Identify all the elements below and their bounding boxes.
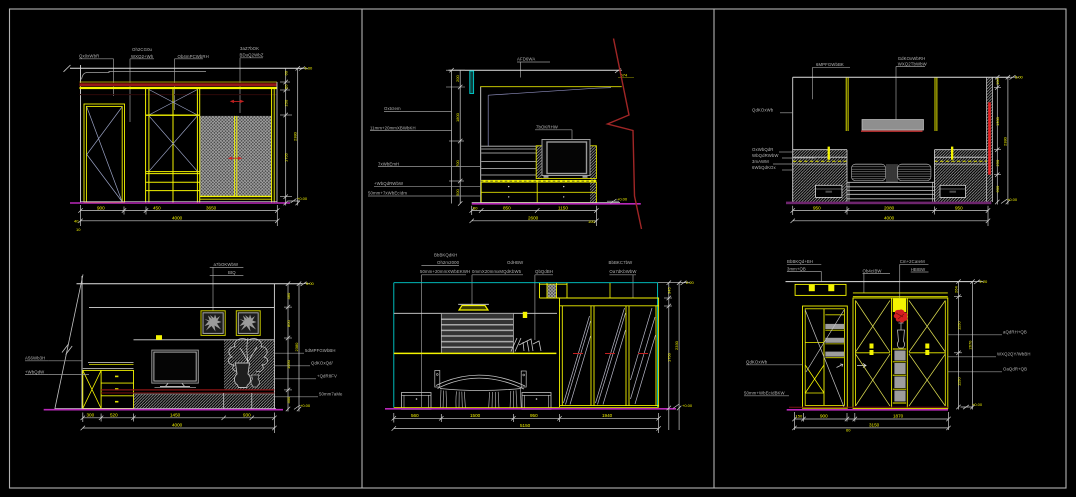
svg-text:3mAWM: 3mAWM (752, 159, 769, 164)
svg-text:5.00: 5.00 (1015, 75, 1024, 80)
svg-text:7bOKRHW: 7bOKRHW (536, 125, 559, 130)
svg-text:+0.00: +0.00 (682, 403, 693, 408)
svg-text:60: 60 (283, 70, 288, 75)
svg-text:50mm7aMe: 50mm7aMe (319, 392, 343, 397)
svg-text:800: 800 (286, 320, 291, 327)
svg-text:BDuQ2WbZ: BDuQ2WbZ (240, 53, 264, 58)
svg-text:AFD6WA: AFD6WA (517, 57, 535, 62)
svg-text:a7bOKWbW: a7bOKWbW (214, 262, 240, 267)
svg-text:BbBKQd+BH: BbBKQd+BH (787, 259, 813, 264)
svg-text:2380: 2380 (294, 342, 299, 352)
svg-text:520: 520 (110, 413, 118, 418)
svg-text:1050: 1050 (286, 359, 291, 369)
svg-text:OxWbQdR: OxWbQdR (752, 147, 773, 152)
svg-text:4000: 4000 (172, 423, 183, 428)
svg-text:Ob4mPCWbRH: Ob4mPCWbRH (178, 54, 209, 59)
svg-text:450: 450 (153, 205, 161, 210)
svg-text:WXQ2TbWbW: WXQ2TbWbW (898, 61, 928, 66)
svg-text:3650: 3650 (206, 205, 217, 210)
svg-text:100: 100 (588, 219, 595, 224)
svg-text:BbBKQdKH: BbBKQdKH (434, 253, 458, 258)
svg-text:+WbQdRWbW: +WbQdRWbW (374, 181, 404, 186)
svg-text:1150: 1150 (558, 205, 568, 210)
svg-text:10: 10 (76, 227, 81, 232)
svg-text:1450: 1450 (170, 413, 181, 418)
svg-text:11mm+20mmXBWbKH: 11mm+20mmXBWbKH (370, 125, 416, 130)
svg-text:1750: 1750 (667, 352, 672, 362)
svg-text:OdHBW: OdHBW (507, 260, 524, 265)
svg-text:WXQ2+Wh: WXQ2+Wh (131, 54, 154, 59)
svg-text:850: 850 (503, 205, 511, 210)
svg-text:QdKOxWb: QdKOxWb (752, 108, 774, 113)
svg-text:100: 100 (995, 78, 1000, 85)
svg-text:+QdR8FV: +QdR8FV (317, 374, 337, 379)
svg-text:50: 50 (283, 84, 288, 89)
svg-text:6WbQdKOx: 6WbQdKOx (752, 165, 776, 170)
svg-text:560: 560 (411, 413, 419, 418)
svg-text:60: 60 (846, 428, 851, 433)
svg-text:A56Wb3H: A56Wb3H (25, 356, 45, 361)
svg-text:+0.00: +0.00 (972, 402, 983, 407)
svg-text:0mmX20mmxMQdKbW5: 0mmX20mmxMQdKbW5 (472, 269, 522, 274)
svg-text:+0.00: +0.00 (297, 196, 308, 201)
svg-text:150: 150 (796, 414, 803, 419)
svg-text:BtQ: BtQ (228, 270, 236, 275)
svg-text:2080: 2080 (884, 205, 895, 210)
svg-text:5.00: 5.00 (305, 66, 314, 71)
svg-text:4000: 4000 (884, 216, 895, 221)
svg-text:950: 950 (955, 205, 963, 210)
svg-text:Oh2m2000: Oh2m2000 (437, 260, 460, 265)
svg-text:50: 50 (473, 205, 478, 210)
svg-text:WbQdRWbW: WbQdRWbW (752, 153, 779, 158)
svg-text:40: 40 (74, 219, 79, 224)
svg-text:1800: 1800 (455, 112, 460, 122)
svg-text:OxtcIem: OxtcIem (384, 106, 401, 111)
svg-text:5dMPFGWbBH: 5dMPFGWbBH (305, 348, 336, 353)
svg-text:264: 264 (953, 286, 958, 293)
svg-text:2600: 2600 (528, 216, 539, 221)
svg-text:1300: 1300 (995, 116, 1000, 126)
svg-text:7xWbEmH: 7xWbEmH (378, 161, 399, 166)
svg-text:3150: 3150 (869, 423, 880, 428)
svg-text:+WbQdW: +WbQdW (25, 369, 45, 374)
svg-text:50mm+WbEcIdBKW: 50mm+WbEcIdBKW (744, 391, 786, 396)
svg-text:300: 300 (87, 413, 95, 418)
svg-text:+0.00: +0.00 (300, 403, 311, 408)
svg-text:Ob4cIBW: Ob4cIBW (863, 268, 883, 273)
svg-text:1870: 1870 (893, 414, 904, 419)
svg-text:Cm+2CaIeM: Cm+2CaIeM (900, 259, 925, 264)
svg-text:2380: 2380 (293, 131, 298, 141)
svg-text:900: 900 (820, 414, 828, 419)
svg-text:700: 700 (455, 160, 460, 167)
svg-text:Oa7dKbWbW: Oa7dKbWbW (609, 269, 637, 274)
svg-text:250: 250 (283, 99, 288, 106)
svg-text:200: 200 (455, 75, 460, 82)
svg-text:1500: 1500 (470, 413, 481, 418)
svg-text:3aZ7bOK: 3aZ7bOK (240, 46, 259, 51)
svg-text:QdKOxWb: QdKOxWb (746, 360, 768, 365)
svg-text:3mm+QB: 3mm+QB (787, 266, 806, 271)
svg-text:2.20: 2.20 (980, 279, 989, 284)
svg-text:600: 600 (995, 185, 1000, 192)
svg-text:50mm+20mmXWbEKWH: 50mm+20mmXWbEKWH (420, 269, 470, 274)
svg-text:OaQdR+QB: OaQdR+QB (1003, 367, 1027, 372)
svg-text:aQdRH+QB: aQdRH+QB (1003, 330, 1027, 335)
svg-text:1150: 1150 (957, 377, 962, 386)
svg-text:4000: 4000 (172, 216, 183, 221)
svg-text:2330: 2330 (674, 340, 679, 350)
svg-text:Oh2CG0u: Oh2CG0u (132, 47, 153, 52)
svg-text:WXQ2QY/WbBH: WXQ2QY/WbBH (997, 352, 1031, 357)
svg-text:+0.00: +0.00 (1007, 197, 1018, 202)
svg-text:250: 250 (995, 159, 1000, 166)
svg-text:400: 400 (286, 396, 291, 403)
svg-text:6MPFGWbBK: 6MPFGWbBK (816, 62, 844, 67)
svg-text:1755: 1755 (283, 152, 288, 162)
svg-text:345: 345 (667, 287, 672, 294)
svg-text:480: 480 (286, 292, 291, 299)
svg-text:950: 950 (813, 205, 821, 210)
svg-text:500: 500 (455, 189, 460, 196)
svg-text:HBIBW: HBIBW (911, 267, 926, 272)
svg-text:950: 950 (530, 413, 538, 418)
svg-text:1940: 1940 (602, 413, 613, 418)
svg-text:+0.00: +0.00 (617, 197, 628, 202)
svg-text:900: 900 (97, 205, 105, 210)
svg-text:QdKOxQd/: QdKOxQd/ (311, 361, 334, 366)
svg-text:2670: 2670 (967, 340, 972, 350)
svg-text:QbQdBH: QbQdBH (535, 269, 553, 274)
svg-text:2380: 2380 (1003, 136, 1008, 146)
svg-text:Qx0xWbR: Qx0xWbR (79, 54, 99, 59)
svg-text:BbBKC7bW: BbBKC7bW (609, 260, 634, 265)
svg-text:50mm+7xWbEcIdm: 50mm+7xWbEcIdm (368, 191, 407, 196)
svg-text:930: 930 (243, 413, 251, 418)
svg-text:2.20: 2.20 (686, 280, 695, 285)
svg-text:5.00: 5.00 (306, 281, 315, 286)
svg-text:5150: 5150 (520, 423, 531, 428)
svg-text:1150: 1150 (957, 321, 962, 330)
